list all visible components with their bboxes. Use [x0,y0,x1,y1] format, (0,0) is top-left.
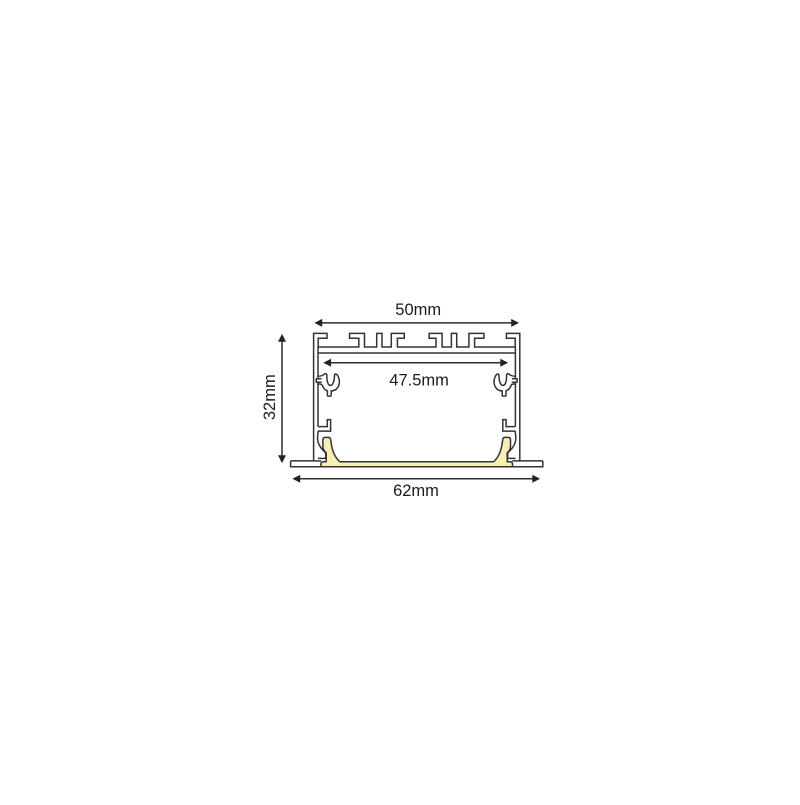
svg-text:62mm: 62mm [393,482,439,500]
svg-text:50mm: 50mm [395,301,441,319]
svg-text:32mm: 32mm [261,374,279,420]
svg-text:47.5mm: 47.5mm [389,371,449,389]
